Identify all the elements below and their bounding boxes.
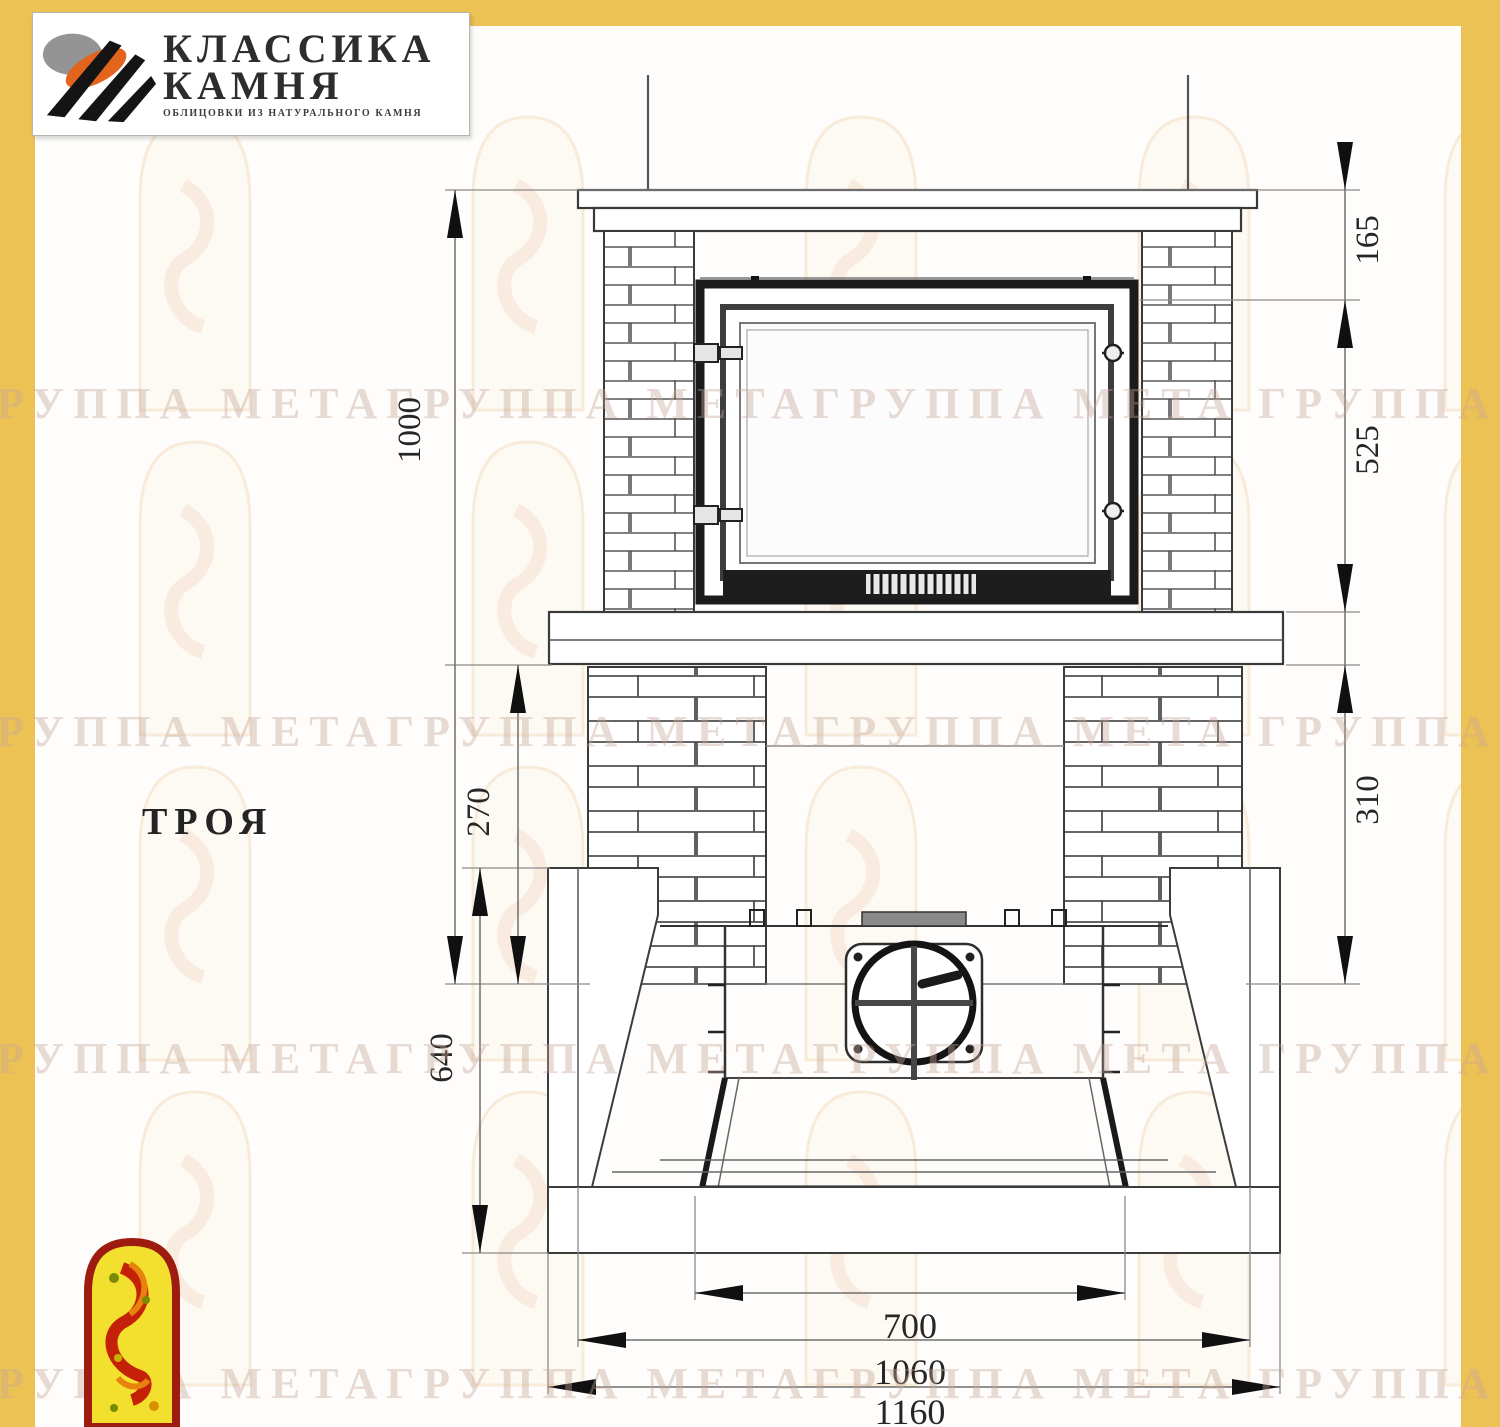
logo-subtitle: ОБЛИЦОВКИ ИЗ НАТУРАЛЬНОГО КАМНЯ	[163, 108, 435, 119]
logo-title-line2: КАМНЯ	[163, 67, 435, 104]
collar-bolt	[854, 1045, 863, 1054]
mount-bracket	[797, 910, 811, 926]
mount-bracket	[1005, 910, 1019, 926]
door-hinge-top-icon	[694, 344, 742, 362]
front-view	[549, 75, 1283, 984]
company-logo: КЛАССИКА КАМНЯ ОБЛИЦОВКИ ИЗ НАТУРАЛЬНОГО…	[32, 12, 470, 136]
door-glass	[740, 323, 1095, 563]
model-name-label: ТРОЯ	[142, 800, 273, 844]
logo-title-line1: КЛАССИКА	[163, 30, 435, 67]
plan-wall-right	[1170, 868, 1280, 1187]
collar-bolt	[966, 1045, 975, 1054]
plan-base-slab	[548, 1187, 1280, 1253]
mascot-logo-icon	[84, 1238, 180, 1427]
vent-grille	[723, 570, 1111, 598]
dim-640-label: 640	[424, 1033, 460, 1083]
door-hinge-bottom-icon	[694, 506, 742, 524]
fireplace-drawing: 1000 270 165 525 310 640 700 1060 1160	[0, 0, 1500, 1427]
collar-bolt	[966, 953, 975, 962]
dim-1160-label: 1160	[875, 1392, 946, 1427]
dim-525-label: 525	[1350, 425, 1386, 475]
mantel-shelf-lower	[594, 208, 1241, 231]
dim-165-label: 165	[1350, 215, 1386, 265]
dim-700-label: 700	[883, 1306, 937, 1346]
dim-1000-label: 1000	[392, 397, 428, 463]
page: { "logo": { "title_line1": "КЛАССИКА", "…	[0, 0, 1500, 1427]
brick-column-left	[604, 231, 694, 612]
dim-1060-label: 1060	[874, 1352, 946, 1392]
stone-logo-icon	[39, 24, 157, 124]
dim-270-label: 270	[461, 787, 497, 837]
dim-310-label: 310	[1350, 775, 1386, 825]
plan-wall-left	[548, 868, 658, 1187]
logo-text-block: КЛАССИКА КАМНЯ ОБЛИЦОВКИ ИЗ НАТУРАЛЬНОГО…	[163, 30, 435, 119]
flue-plate	[862, 912, 966, 926]
mantel-shelf-top	[578, 190, 1257, 208]
chimney-flue-lines	[648, 75, 1188, 190]
collar-bolt	[854, 953, 863, 962]
hearth-shelf	[549, 612, 1283, 664]
brick-column-right	[1142, 231, 1232, 612]
